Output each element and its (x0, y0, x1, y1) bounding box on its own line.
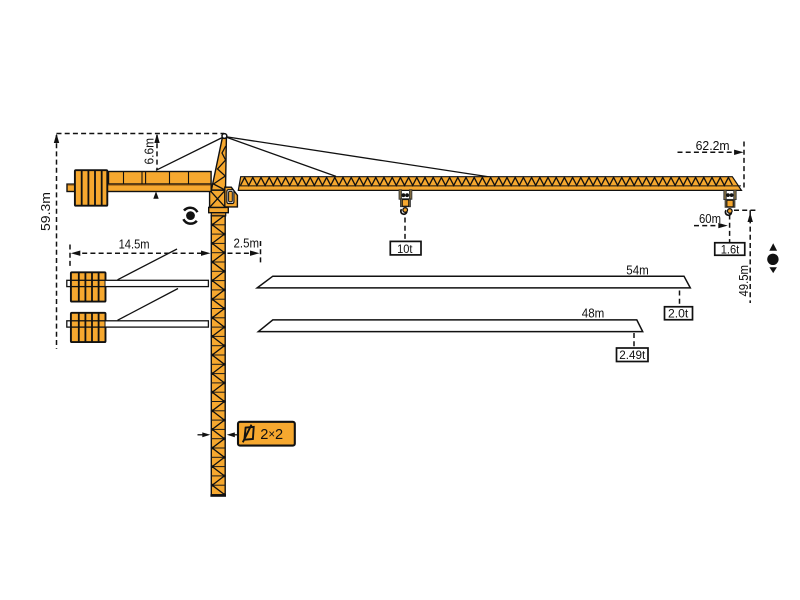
svg-text:1.6t: 1.6t (721, 242, 740, 256)
svg-text:2×2: 2×2 (260, 427, 283, 443)
svg-text:62.2m: 62.2m (696, 138, 730, 153)
svg-text:2.5m: 2.5m (234, 236, 260, 251)
svg-text:6.6m: 6.6m (141, 138, 156, 165)
svg-text:59.3m: 59.3m (38, 192, 53, 231)
svg-text:14.5m: 14.5m (119, 236, 150, 251)
svg-text:10t: 10t (397, 242, 413, 256)
svg-text:2.49t: 2.49t (619, 348, 646, 362)
svg-text:60m: 60m (699, 211, 721, 226)
svg-text:2.0t: 2.0t (668, 307, 689, 321)
svg-text:48m: 48m (582, 305, 605, 320)
svg-text:49.5m: 49.5m (736, 265, 751, 297)
svg-text:54m: 54m (626, 262, 649, 277)
